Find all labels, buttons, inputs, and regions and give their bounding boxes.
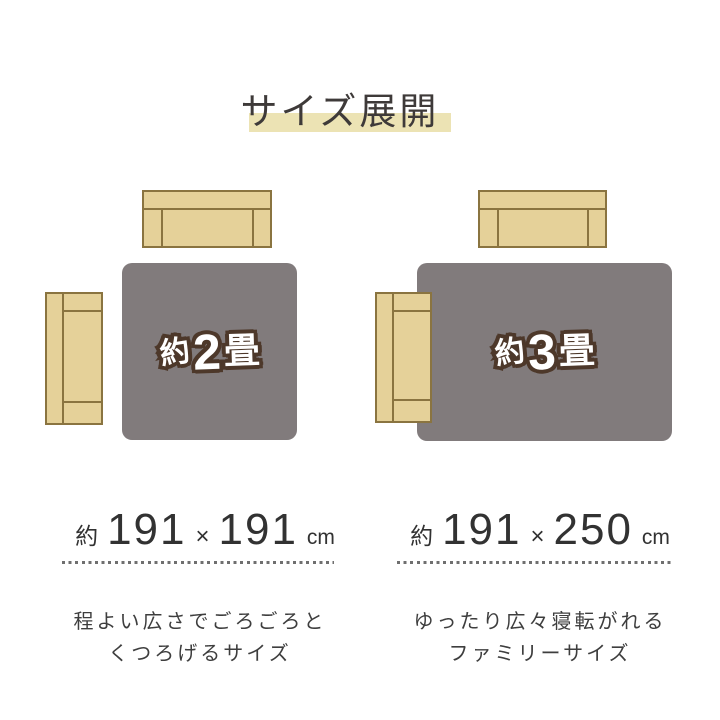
sofa-backrest: [377, 294, 394, 421]
sofa-armrest: [587, 210, 605, 246]
sofa-armrest: [144, 210, 163, 246]
sofa-seat: [163, 210, 252, 246]
description-line: 程よい広さでごろごろと: [40, 606, 360, 638]
size-text-2tatami: 約 191 × 191 cm: [40, 508, 370, 552]
sofa-backrest: [47, 294, 64, 423]
size-unit-label: cm: [307, 526, 335, 550]
multiply-sign: ×: [530, 523, 544, 551]
sofa-top-2tatami: [142, 190, 272, 248]
sofa-armrest: [64, 401, 101, 423]
size-width-value: 191: [442, 508, 521, 552]
multiply-sign: ×: [195, 523, 209, 551]
size-unit-label: cm: [642, 526, 670, 550]
sofa-armrest: [252, 210, 270, 246]
sofa-seat: [64, 312, 101, 401]
sofa-backrest: [480, 192, 605, 210]
size-approx-label: 約: [75, 517, 98, 551]
description-line: ファミリーサイズ: [383, 638, 697, 670]
sofa-armrest: [394, 399, 430, 421]
sofa-armrest: [64, 294, 101, 312]
page-title-text: サイズ展開: [241, 91, 440, 132]
rug-2tatami: 約2畳 約2畳: [122, 263, 297, 440]
sofa-side-2tatami: [45, 292, 103, 425]
sofa-side-3tatami: [375, 292, 432, 423]
size-depth-value: 191: [219, 508, 298, 552]
size-approx-label: 約: [410, 517, 433, 551]
description-2tatami: 程よい広さでごろごろと くつろげるサイズ: [40, 606, 360, 670]
size-depth-value: 250: [554, 508, 633, 552]
rug-label-text: 約2畳: [159, 325, 261, 378]
description-line: くつろげるサイズ: [40, 638, 360, 670]
description-3tatami: ゆったり広々寝転がれる ファミリーサイズ: [383, 606, 697, 670]
rug-3tatami: 約3畳 約3畳: [417, 263, 672, 441]
page-title: サイズ展開: [241, 91, 440, 134]
rug-label-text: 約3畳: [494, 325, 596, 378]
rug-label-3tatami: 約3畳 約3畳: [494, 325, 596, 378]
sofa-armrest: [394, 294, 430, 312]
sofa-seat: [394, 312, 430, 399]
size-text-3tatami: 約 191 × 250 cm: [385, 508, 695, 552]
dotted-divider-2tatami: [62, 561, 334, 564]
sofa-armrest: [480, 210, 499, 246]
size-width-value: 191: [107, 508, 186, 552]
dotted-divider-3tatami: [397, 561, 672, 564]
size-variations-infographic: サイズ展開 約2畳: [0, 0, 720, 720]
sofa-top-3tatami: [478, 190, 607, 248]
title-section: サイズ展開: [0, 66, 720, 158]
rug-label-2tatami: 約2畳 約2畳: [159, 325, 261, 378]
sofa-seat: [499, 210, 587, 246]
sofa-backrest: [144, 192, 270, 210]
description-line: ゆったり広々寝転がれる: [383, 606, 697, 638]
